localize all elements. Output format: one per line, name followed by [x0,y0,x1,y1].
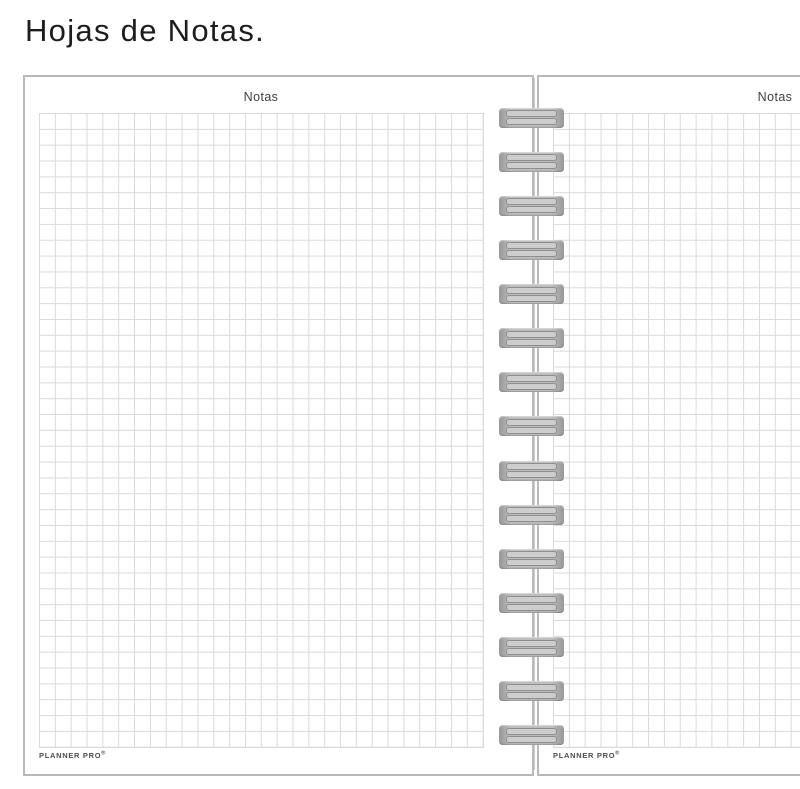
notebook-sheet-right: Notas PLANNER PRO® [537,75,800,776]
binding-clip [499,725,564,745]
binding-slot [506,198,557,205]
binding-slot [506,463,557,470]
binding-clip [499,681,564,701]
binding-slot [506,331,557,338]
binding-slot [506,295,557,302]
binding-slot [506,154,557,161]
binding-slot [506,515,557,522]
binding-clip [499,152,564,172]
brand-text: PLANNER PRO [39,751,101,760]
binding-slot [506,419,557,426]
binding-slot [506,684,557,691]
binding-clip [499,593,564,613]
binding-slot [506,728,557,735]
grid-paper [39,113,484,748]
page-title: Hojas de Notas. [25,12,265,49]
sheet-header-label: Notas [553,90,800,104]
binding-slot [506,250,557,257]
binding-slot [506,559,557,566]
binding-slot [506,339,557,346]
product-mockup: Hojas de Notas. Notas PLANNER PRO® Notas… [0,0,800,789]
binding-clip [499,549,564,569]
binding-slot [506,287,557,294]
binding-clip [499,328,564,348]
binding-clip [499,108,564,128]
binding-slot [506,507,557,514]
registered-mark-icon: ® [101,751,106,757]
binding-slot [506,551,557,558]
binding-slot [506,383,557,390]
binding-slot [506,162,557,169]
binding-slot [506,692,557,699]
binding-slot [506,648,557,655]
binding-slot [506,118,557,125]
spiral-binding [499,0,564,789]
binding-clip [499,240,564,260]
binding-slot [506,596,557,603]
brand-label: PLANNER PRO® [39,751,106,760]
binding-slot [506,375,557,382]
binding-slot [506,736,557,743]
binding-slot [506,206,557,213]
binding-clip [499,461,564,481]
binding-slot [506,110,557,117]
binding-slot [506,640,557,647]
grid-paper [553,113,800,748]
binding-clip [499,416,564,436]
binding-slot [506,471,557,478]
binding-slot [506,427,557,434]
binding-clip [499,284,564,304]
sheet-header-label: Notas [39,90,483,104]
binding-clip [499,372,564,392]
binding-clip [499,196,564,216]
binding-clip [499,505,564,525]
notebook-sheet-left: Notas PLANNER PRO® [23,75,534,776]
registered-mark-icon: ® [615,751,620,757]
binding-slot [506,242,557,249]
binding-slot [506,604,557,611]
binding-clip [499,637,564,657]
